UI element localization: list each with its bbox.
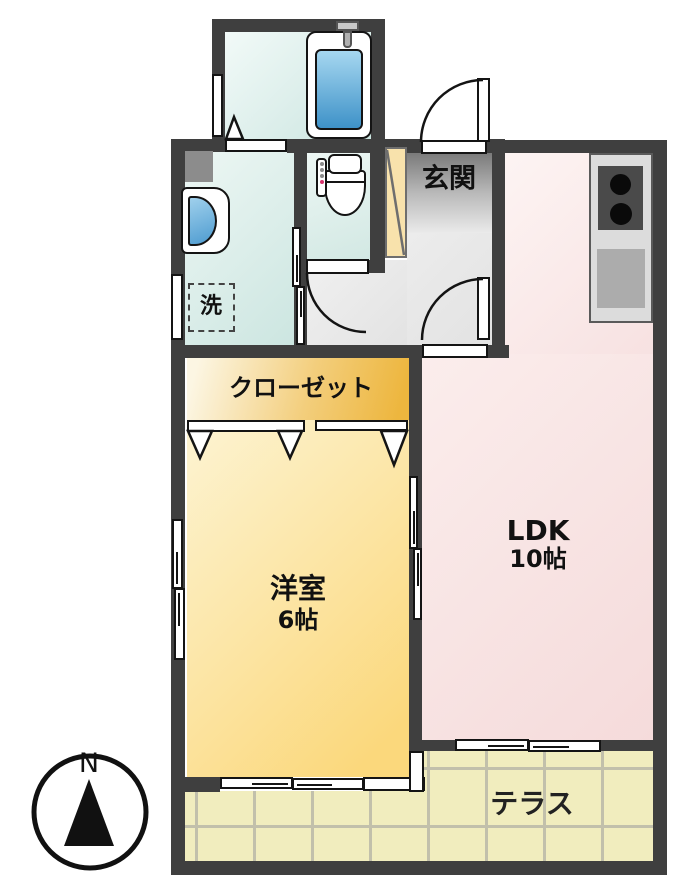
compass-icon: N: [34, 748, 146, 868]
hallway-floor: [307, 260, 407, 356]
terrace-left: [185, 791, 424, 861]
closet-label: クローゼット: [229, 376, 373, 400]
wall-exterior-bottom: [171, 861, 667, 875]
closet-door-rail: [315, 420, 408, 431]
terrace-window-western: [220, 777, 293, 789]
entrance-door-threshold: [421, 140, 487, 154]
wall: [505, 140, 667, 153]
terrace-window-ldk: [528, 740, 601, 752]
washroom-window: [171, 274, 183, 340]
terrace-label: テラス: [490, 790, 573, 818]
toilet-button: [320, 162, 324, 166]
wall: [185, 777, 220, 792]
closet-door-rail: [187, 420, 305, 432]
toilet-control-panel: [316, 158, 327, 197]
western-room-window: [172, 519, 183, 589]
ldk-label: LDK: [507, 517, 570, 545]
wall: [370, 139, 385, 273]
shoe-cabinet: [385, 147, 407, 258]
terrace-window-ldk: [455, 739, 529, 751]
compass-needle: [64, 779, 114, 846]
stove-burner: [610, 174, 631, 195]
terrace-window-western: [292, 778, 364, 790]
toilet-button: [320, 168, 324, 172]
toilet-button: [320, 180, 324, 184]
western-room-window: [174, 588, 185, 660]
faucet-icon: [336, 21, 359, 31]
faucet-stem: [343, 31, 352, 48]
floor-plan: N 玄関 クローゼット 洋室 6帖 LDK 10帖 テラス 洗: [0, 0, 684, 892]
wall: [371, 19, 385, 152]
ldk-size: 10帖: [509, 547, 566, 571]
room-sliding-door: [409, 476, 418, 549]
wall: [492, 139, 505, 358]
hall-door-threshold: [422, 344, 488, 358]
toilet-button: [320, 174, 324, 178]
bathroom-door-threshold: [225, 139, 287, 152]
washroom-sliding-door: [296, 286, 305, 345]
corner-window-piece: [409, 751, 424, 792]
compass-north-label: N: [79, 748, 99, 779]
wall: [600, 740, 653, 751]
bathtub-water: [315, 49, 363, 130]
washroom-sliding-door: [292, 227, 301, 287]
kitchen-sink: [597, 249, 645, 308]
toilet-seat-line: [326, 181, 364, 183]
room-sliding-door: [413, 548, 422, 620]
toilet-door-threshold: [306, 259, 369, 274]
wall: [422, 740, 455, 751]
stove-burner: [610, 203, 632, 225]
wall-exterior-right: [653, 140, 667, 875]
laundry-label: 洗: [200, 296, 222, 318]
entrance-door-arc: [421, 80, 483, 142]
compass-circle: [34, 756, 146, 868]
hall-door-leaf: [477, 277, 490, 340]
entrance-label: 玄関: [422, 166, 476, 193]
pipe-space: [185, 151, 213, 182]
entrance-door-leaf: [477, 78, 490, 142]
western-room-size: 6帖: [278, 608, 319, 632]
western-room-label: 洋室: [270, 575, 326, 603]
toilet-tank: [328, 154, 362, 174]
bathroom-window: [212, 74, 223, 137]
